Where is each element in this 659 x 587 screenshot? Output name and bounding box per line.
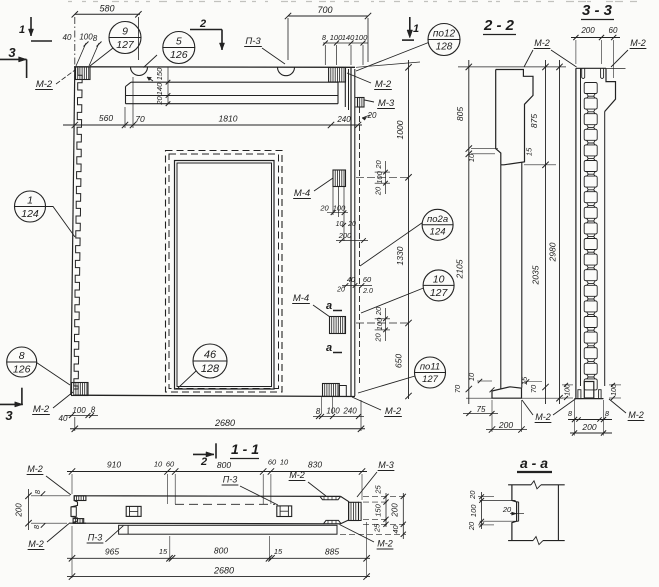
svg-text:965: 965	[105, 547, 119, 557]
svg-text:150: 150	[155, 67, 164, 80]
svg-text:830: 830	[308, 460, 322, 470]
svg-text:М-2: М-2	[375, 79, 392, 90]
svg-text:20: 20	[319, 204, 329, 213]
svg-text:М-2: М-2	[33, 404, 50, 415]
svg-text:200: 200	[391, 503, 400, 518]
svg-text:40: 40	[347, 275, 356, 284]
svg-text:70: 70	[529, 384, 538, 393]
svg-text:М-4: М-4	[293, 293, 309, 304]
svg-text:2980: 2980	[548, 242, 558, 262]
svg-text:100: 100	[79, 33, 93, 42]
svg-text:580: 580	[99, 4, 114, 14]
svg-text:1: 1	[27, 195, 33, 207]
svg-text:М-2: М-2	[534, 38, 550, 48]
svg-text:124: 124	[21, 208, 39, 220]
svg-text:60: 60	[609, 26, 618, 35]
svg-text:75: 75	[477, 405, 486, 414]
svg-text:2680: 2680	[214, 418, 235, 428]
svg-text:910: 910	[107, 460, 121, 470]
svg-text:П-3: П-3	[88, 533, 103, 543]
svg-text:875: 875	[529, 114, 539, 128]
svg-text:по11: по11	[420, 362, 440, 373]
svg-text:15: 15	[525, 147, 534, 156]
svg-text:М-2: М-2	[630, 38, 646, 48]
svg-text:20: 20	[374, 306, 383, 316]
svg-text:10: 10	[154, 460, 163, 469]
svg-text:3: 3	[8, 45, 16, 60]
svg-text:по12: по12	[433, 29, 456, 40]
svg-text:10: 10	[280, 458, 289, 467]
svg-text:200: 200	[580, 26, 595, 35]
svg-text:200: 200	[498, 420, 513, 430]
svg-text:1: 1	[413, 23, 419, 35]
svg-text:100: 100	[326, 407, 340, 416]
svg-text:10: 10	[467, 372, 476, 381]
svg-text:1 - 1: 1 - 1	[231, 441, 259, 457]
svg-text:25: 25	[374, 485, 383, 495]
svg-text:a - a: a - a	[520, 455, 548, 471]
svg-text:a: a	[326, 300, 332, 312]
svg-text:М-3: М-3	[378, 98, 395, 109]
svg-text:60: 60	[363, 275, 372, 284]
svg-text:20: 20	[374, 186, 383, 196]
svg-text:П-3: П-3	[245, 36, 261, 47]
svg-text:2 - 2: 2 - 2	[483, 17, 515, 34]
svg-text:560: 560	[99, 113, 113, 123]
svg-text:П-3: П-3	[223, 475, 238, 485]
svg-text:2035: 2035	[531, 265, 541, 285]
svg-text:127: 127	[430, 287, 449, 299]
svg-text:200: 200	[15, 503, 24, 518]
svg-text:800: 800	[214, 546, 228, 556]
svg-text:20: 20	[374, 160, 383, 170]
svg-text:15: 15	[159, 547, 168, 556]
svg-text:60: 60	[268, 458, 277, 467]
svg-text:150: 150	[374, 503, 383, 516]
svg-text:700: 700	[317, 5, 332, 15]
svg-text:М-2: М-2	[28, 539, 44, 549]
svg-text:650: 650	[394, 354, 404, 368]
svg-text:20: 20	[468, 490, 477, 500]
svg-text:1000: 1000	[395, 120, 405, 139]
svg-text:46: 46	[204, 349, 217, 361]
svg-text:10: 10	[433, 273, 445, 285]
svg-text:20: 20	[467, 521, 476, 531]
svg-text:70: 70	[135, 114, 145, 124]
svg-text:127: 127	[116, 39, 135, 51]
svg-text:10: 10	[467, 153, 476, 162]
svg-text:20: 20	[347, 221, 356, 228]
svg-text:2.0: 2.0	[362, 288, 373, 295]
svg-text:60: 60	[166, 460, 175, 469]
svg-text:М-2: М-2	[36, 79, 53, 90]
svg-text:М-2: М-2	[377, 539, 393, 549]
svg-text:3: 3	[5, 408, 13, 423]
svg-text:М-2: М-2	[535, 412, 551, 422]
svg-text:127: 127	[422, 374, 439, 385]
svg-text:М-2: М-2	[628, 410, 644, 420]
svg-text:20: 20	[502, 505, 512, 514]
svg-text:3 - 3: 3 - 3	[582, 2, 613, 19]
svg-text:800: 800	[217, 460, 231, 470]
svg-text:40: 40	[391, 525, 400, 534]
svg-text:140: 140	[155, 82, 164, 95]
svg-text:200: 200	[581, 422, 596, 432]
svg-text:128: 128	[436, 42, 453, 53]
svg-text:2: 2	[200, 456, 207, 468]
svg-text:128: 128	[201, 363, 220, 375]
svg-text:805: 805	[455, 107, 465, 121]
svg-text:1810: 1810	[219, 114, 238, 124]
svg-text:100: 100	[469, 504, 478, 517]
svg-text:240: 240	[342, 407, 357, 416]
svg-text:М-3: М-3	[378, 460, 394, 470]
svg-text:240: 240	[336, 115, 351, 124]
svg-text:a: a	[326, 342, 332, 354]
svg-text:100: 100	[355, 33, 368, 42]
svg-text:М-2: М-2	[385, 406, 402, 417]
svg-text:70: 70	[453, 384, 462, 393]
svg-text:20: 20	[374, 333, 383, 343]
svg-text:2: 2	[199, 18, 206, 30]
svg-text:8: 8	[19, 350, 25, 362]
svg-text:15: 15	[274, 547, 283, 556]
svg-text:8: 8	[93, 34, 98, 43]
svg-text:9: 9	[122, 26, 128, 38]
svg-text:2105: 2105	[455, 259, 465, 279]
svg-text:885: 885	[325, 547, 339, 557]
svg-text:124: 124	[430, 226, 446, 237]
svg-text:40: 40	[63, 33, 72, 42]
svg-text:М-2: М-2	[27, 464, 43, 474]
svg-text:по2а: по2а	[427, 214, 448, 225]
svg-text:М-2: М-2	[289, 470, 305, 480]
svg-text:200: 200	[338, 231, 352, 240]
svg-text:100: 100	[72, 406, 86, 415]
svg-text:1330: 1330	[395, 246, 405, 265]
svg-text:126: 126	[13, 364, 31, 376]
svg-text:М-4: М-4	[294, 188, 310, 199]
svg-text:126: 126	[170, 49, 188, 61]
svg-text:20: 20	[155, 96, 164, 106]
svg-text:5: 5	[176, 36, 182, 48]
svg-text:2680: 2680	[213, 566, 234, 576]
svg-text:1: 1	[19, 24, 25, 36]
